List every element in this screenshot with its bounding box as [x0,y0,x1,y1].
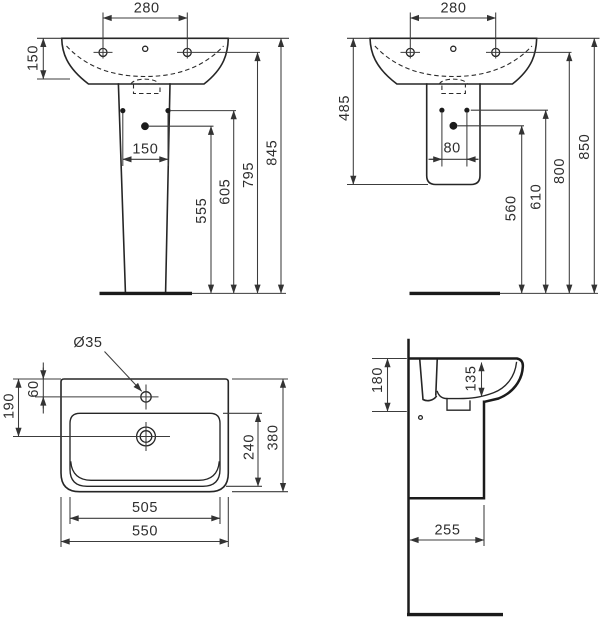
dim-label-tap-deck-height: 795 [241,162,257,188]
dim-label-tap-spacing: 280 [134,1,160,17]
dim-label-overall-width: 550 [132,524,158,540]
dim-label-fixing-spacing: 150 [132,142,158,158]
dim-label-drain-height: 560 [504,195,520,221]
overflow-hole [143,46,148,51]
dim-label-overall-depth: 380 [266,425,282,451]
fixing-hole-right [165,108,170,113]
semi-pedestal-outline [427,84,480,185]
trap-cover-dashed [442,84,466,94]
fixing-hole-right [464,108,469,113]
dim-label-fixing-holes-height: 610 [529,184,545,210]
basin-inner-dashed-curve [375,46,532,77]
dim-label-overall-height: 845 [265,140,281,166]
pedestal-left-edge [118,84,125,292]
dim-label-bowl-depth: 240 [241,434,257,460]
drawing-page: 280 150 150 555 605 795 845 [0,0,600,619]
view-front-pedestal: 280 150 150 555 605 795 845 [26,1,290,294]
dim-label-tap-hole-offset: 60 [26,380,42,397]
basin-outline [62,38,229,84]
bowl-bottom-offset-curve [71,462,219,480]
basin-inner-dashed-curve [67,46,224,77]
dim-label-body-height: 485 [337,95,353,121]
trap-cover-dashed [134,84,161,94]
dim-label-drain-offset: 190 [2,393,18,419]
fixing-hole-left [120,108,125,113]
overflow-channel [420,360,437,401]
technical-drawing-canvas: 280 150 150 555 605 795 845 [0,0,600,619]
diameter-leader-line [105,352,142,392]
dim-label-fixing-holes-height: 605 [217,179,233,205]
fixing-hole-left [439,108,444,113]
dim-label-tap-deck-height: 800 [552,158,568,184]
view-front-wall-hung: 280 485 80 560 610 800 850 [337,1,600,294]
dim-label-fixing-spacing: 80 [444,141,461,157]
dim-label-front-height: 180 [370,367,386,393]
dim-label-bowl-width: 505 [132,500,158,516]
dim-label-tap-spacing: 280 [441,1,467,17]
basin-outer-outline [61,379,228,492]
drain-point [450,122,458,130]
dim-label-bowl-inner-depth: 135 [464,366,480,392]
overflow-hole [451,46,456,51]
dim-label-rim-height: 150 [26,45,42,71]
view-side-section: 180 135 255 [370,340,523,615]
fixing-hole [419,416,423,420]
dim-label-overall-height: 850 [577,134,593,160]
dim-label-drain-height: 555 [194,198,210,224]
dim-label-wall-projection: 255 [435,523,461,539]
drain-point [141,122,149,130]
dim-label-tap-hole-diameter: Ø35 [73,335,102,351]
basin-outline [370,38,537,84]
bowl-outline [70,413,220,486]
view-plan: Ø35 60 190 240 380 505 550 [2,335,289,547]
drain-stub [447,399,470,411]
